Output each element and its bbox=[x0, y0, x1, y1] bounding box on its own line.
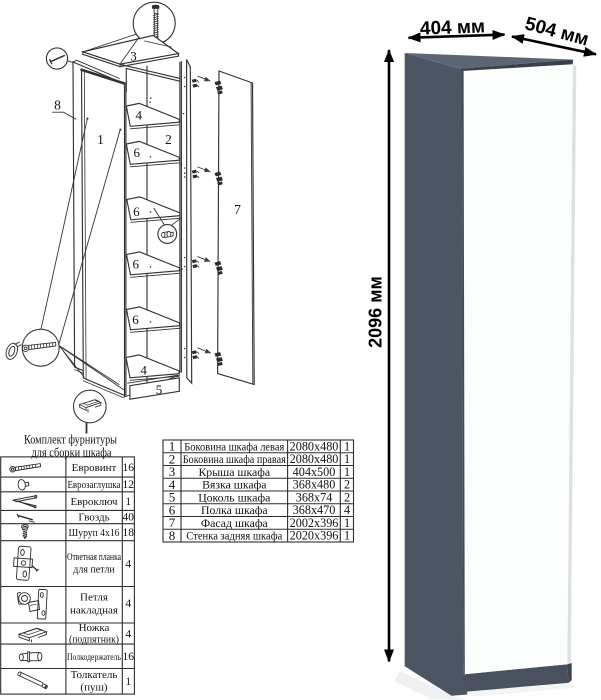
svg-text:(подпятник): (подпятник) bbox=[69, 635, 119, 646]
svg-text:40: 40 bbox=[123, 512, 135, 524]
svg-text:5: 5 bbox=[156, 382, 163, 397]
svg-text:2096 мм: 2096 мм bbox=[365, 276, 385, 348]
svg-text:накладная: накладная bbox=[70, 605, 118, 617]
svg-text:6: 6 bbox=[133, 145, 140, 160]
svg-text:4: 4 bbox=[125, 598, 131, 610]
svg-text:(пуш): (пуш) bbox=[80, 682, 108, 694]
svg-text:Ответная планка: Ответная планка bbox=[67, 552, 121, 563]
svg-text:Гвоздь: Гвоздь bbox=[78, 512, 109, 524]
svg-text:Стенка задняя шкафа: Стенка задняя шкафа bbox=[186, 529, 283, 543]
svg-text:Евровинт: Евровинт bbox=[72, 462, 117, 474]
svg-text:1: 1 bbox=[97, 132, 104, 147]
svg-text:Боковина шкафа левая: Боковина шкафа левая bbox=[184, 439, 284, 453]
svg-text:1: 1 bbox=[125, 496, 131, 508]
svg-text:12: 12 bbox=[123, 479, 135, 491]
svg-text:404 мм: 404 мм bbox=[420, 16, 486, 39]
svg-text:Шуруп 4х16: Шуруп 4х16 bbox=[69, 528, 120, 539]
svg-text:Толкатель: Толкатель bbox=[71, 669, 118, 681]
svg-text:6: 6 bbox=[133, 204, 140, 219]
svg-text:4: 4 bbox=[140, 363, 147, 378]
svg-text:18: 18 bbox=[123, 527, 135, 539]
svg-text:2020х396: 2020х396 bbox=[290, 529, 339, 543]
svg-text:6: 6 bbox=[132, 312, 139, 327]
svg-text:4: 4 bbox=[125, 629, 131, 641]
svg-text:Петля: Петля bbox=[80, 592, 108, 604]
svg-text:16: 16 bbox=[123, 462, 135, 474]
svg-text:Комплект фурнитуры: Комплект фурнитуры bbox=[24, 433, 117, 447]
svg-text:4: 4 bbox=[125, 559, 131, 571]
svg-text:2: 2 bbox=[165, 132, 172, 147]
svg-text:Евроключ: Евроключ bbox=[70, 496, 118, 508]
svg-text:8: 8 bbox=[169, 528, 176, 543]
svg-text:4: 4 bbox=[135, 108, 142, 123]
svg-text:для петли: для петли bbox=[73, 565, 115, 576]
svg-text:16: 16 bbox=[123, 651, 135, 663]
svg-text:8: 8 bbox=[54, 98, 61, 113]
svg-text:7: 7 bbox=[234, 202, 241, 217]
svg-text:1: 1 bbox=[344, 529, 350, 543]
svg-text:3: 3 bbox=[130, 49, 137, 64]
svg-text:Ножка: Ножка bbox=[79, 622, 110, 634]
svg-text:Полкодержатель: Полкодержатель bbox=[67, 652, 121, 663]
svg-text:1: 1 bbox=[125, 676, 131, 688]
svg-text:6: 6 bbox=[132, 257, 139, 272]
svg-text:Еврозаглушка: Еврозаглушка bbox=[68, 480, 121, 491]
